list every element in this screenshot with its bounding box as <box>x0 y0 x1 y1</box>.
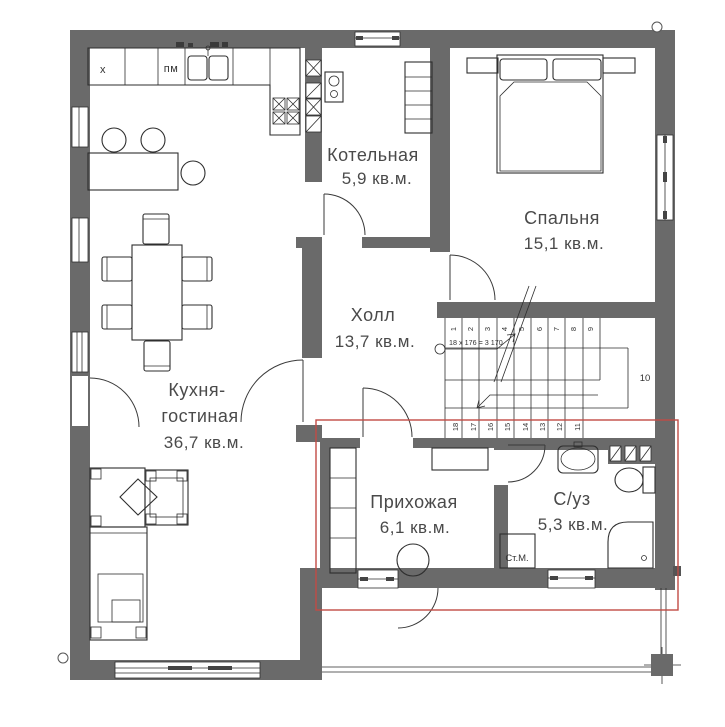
window-bottom <box>115 662 260 678</box>
stair-step-number: 11 <box>573 423 582 431</box>
wall-connector <box>300 568 322 680</box>
chair <box>182 257 212 281</box>
wall-bath-top <box>508 438 608 450</box>
fridge-label: х <box>100 64 106 76</box>
wall-stairs-top <box>437 302 655 318</box>
pillow <box>500 59 547 80</box>
window-right <box>657 135 673 220</box>
door-living-corridor <box>241 360 303 422</box>
stair-formula: 18 х 176 = 3 170 <box>449 338 503 347</box>
room-area-bathroom: 5,3 кв.м. <box>538 515 608 534</box>
double-bed <box>497 55 603 173</box>
stair-step-number: 17 <box>469 423 478 431</box>
stair-step-number: 6 <box>535 327 544 331</box>
room-label-hall: Холл <box>351 305 395 325</box>
entry-door-sill <box>358 570 398 588</box>
bathroom-vent-shafts <box>608 438 655 464</box>
stair-walkline-down <box>477 395 598 408</box>
kitchen-sink <box>188 46 228 80</box>
stair-landing-number: 10 <box>640 373 651 384</box>
room-area-boiler: 5,9 кв.м. <box>342 169 412 188</box>
boiler-unit <box>325 72 343 102</box>
shelf-unit <box>405 62 432 133</box>
window-bathroom <box>548 570 595 588</box>
chair <box>102 305 132 329</box>
stair-step-number: 1 <box>449 327 458 331</box>
room-area-hall: 13,7 кв.м. <box>335 332 415 351</box>
room-area-kitchen-living: 36,7 кв.м. <box>164 433 244 452</box>
wall-bath-divider-top <box>494 438 508 450</box>
shower-cabin <box>608 522 653 568</box>
room-label-boiler: Котельная <box>327 145 419 165</box>
room-label-bedroom: Спальня <box>524 208 600 228</box>
stair-step-number: 14 <box>521 423 530 431</box>
washing-machine-label: Ст.М. <box>505 553 528 564</box>
dishwasher-label: пм <box>164 63 179 75</box>
window-left-3 <box>72 332 88 372</box>
vent-shaft-icons <box>306 60 321 132</box>
floor-plan: 1 2 3 4 5 6 7 8 9 18 17 16 15 14 13 12 1… <box>0 0 725 727</box>
dimension-mark <box>188 43 193 47</box>
door-left-terrace <box>72 376 139 427</box>
nightstand <box>467 58 498 73</box>
chimney-mark <box>652 22 662 32</box>
porch <box>322 588 681 684</box>
stair-step-number: 4 <box>500 327 509 331</box>
stove-icon <box>273 98 299 124</box>
room-label-entry: Прихожая <box>370 492 457 512</box>
kitchen-island <box>88 128 205 190</box>
window-left-2 <box>72 218 88 262</box>
chair <box>182 305 212 329</box>
room-label-kitchen-living-2: гостиная <box>161 406 238 426</box>
dimension-mark <box>222 42 228 47</box>
window-left-1 <box>72 107 88 147</box>
stair-step-number: 12 <box>555 423 564 431</box>
door-front-entry <box>398 588 438 628</box>
wall-entry-top-right <box>413 438 494 448</box>
room-label-bathroom: С/уз <box>553 489 590 509</box>
nightstand <box>603 58 635 73</box>
dining-table <box>132 245 182 340</box>
chair <box>102 257 132 281</box>
dining-set <box>102 214 212 371</box>
room-area-entry: 6,1 кв.м. <box>380 518 450 537</box>
bar-stool <box>141 128 165 152</box>
stair-step-number: 16 <box>486 423 495 431</box>
cabinet <box>432 448 488 470</box>
wall-nub <box>673 566 681 576</box>
porch-column <box>644 647 681 684</box>
stair-step-number: 15 <box>503 423 512 431</box>
entry-fixtures <box>330 448 488 576</box>
stair-step-number: 7 <box>552 327 561 331</box>
bar-stool <box>181 161 205 185</box>
wall-hall-stub-bottom <box>296 425 322 442</box>
door-bedroom <box>450 255 495 300</box>
wall-bedroom <box>430 48 450 252</box>
stair-step-number: 9 <box>586 327 595 331</box>
door-boiler <box>324 194 365 235</box>
wall-hall-left <box>302 237 322 358</box>
corner-sofa <box>90 468 188 640</box>
stair-step-number: 2 <box>466 327 475 331</box>
kitchen-counter: х пм <box>88 46 321 135</box>
pillow <box>553 59 601 80</box>
stair-numbers-lower: 18 17 16 15 14 13 12 11 <box>451 423 582 431</box>
window-top <box>355 32 400 46</box>
stair-step-number: 18 <box>451 423 460 431</box>
room-label-kitchen-living-1: Кухня- <box>168 380 225 400</box>
wall-entry-top-left <box>322 438 360 448</box>
bedroom-fixtures <box>467 55 635 173</box>
stair-step-number: 13 <box>538 423 547 431</box>
stair-numbers-upper: 1 2 3 4 5 6 7 8 9 <box>449 327 595 331</box>
stair-step-number: 3 <box>483 327 492 331</box>
stair-step-number: 5 <box>517 327 526 331</box>
wall-entry-left <box>320 442 330 568</box>
wardrobe <box>330 448 356 573</box>
chimney-mark <box>58 653 68 663</box>
door-bathroom <box>508 445 545 482</box>
bar-stool <box>102 128 126 152</box>
wall-right <box>655 30 675 590</box>
door-entry-hall <box>363 388 412 437</box>
room-area-bedroom: 15,1 кв.м. <box>524 234 604 253</box>
dimension-mark <box>210 42 219 47</box>
chair <box>144 341 170 371</box>
toilet <box>615 467 655 493</box>
sofa-pillow <box>120 479 157 515</box>
chair <box>143 214 169 244</box>
stair-step-number: 8 <box>569 327 578 331</box>
dimension-mark <box>176 42 184 47</box>
boiler-room-fixtures <box>325 62 432 133</box>
room-labels: Котельная 5,9 кв.м. Спальня 15,1 кв.м. Х… <box>161 145 608 537</box>
